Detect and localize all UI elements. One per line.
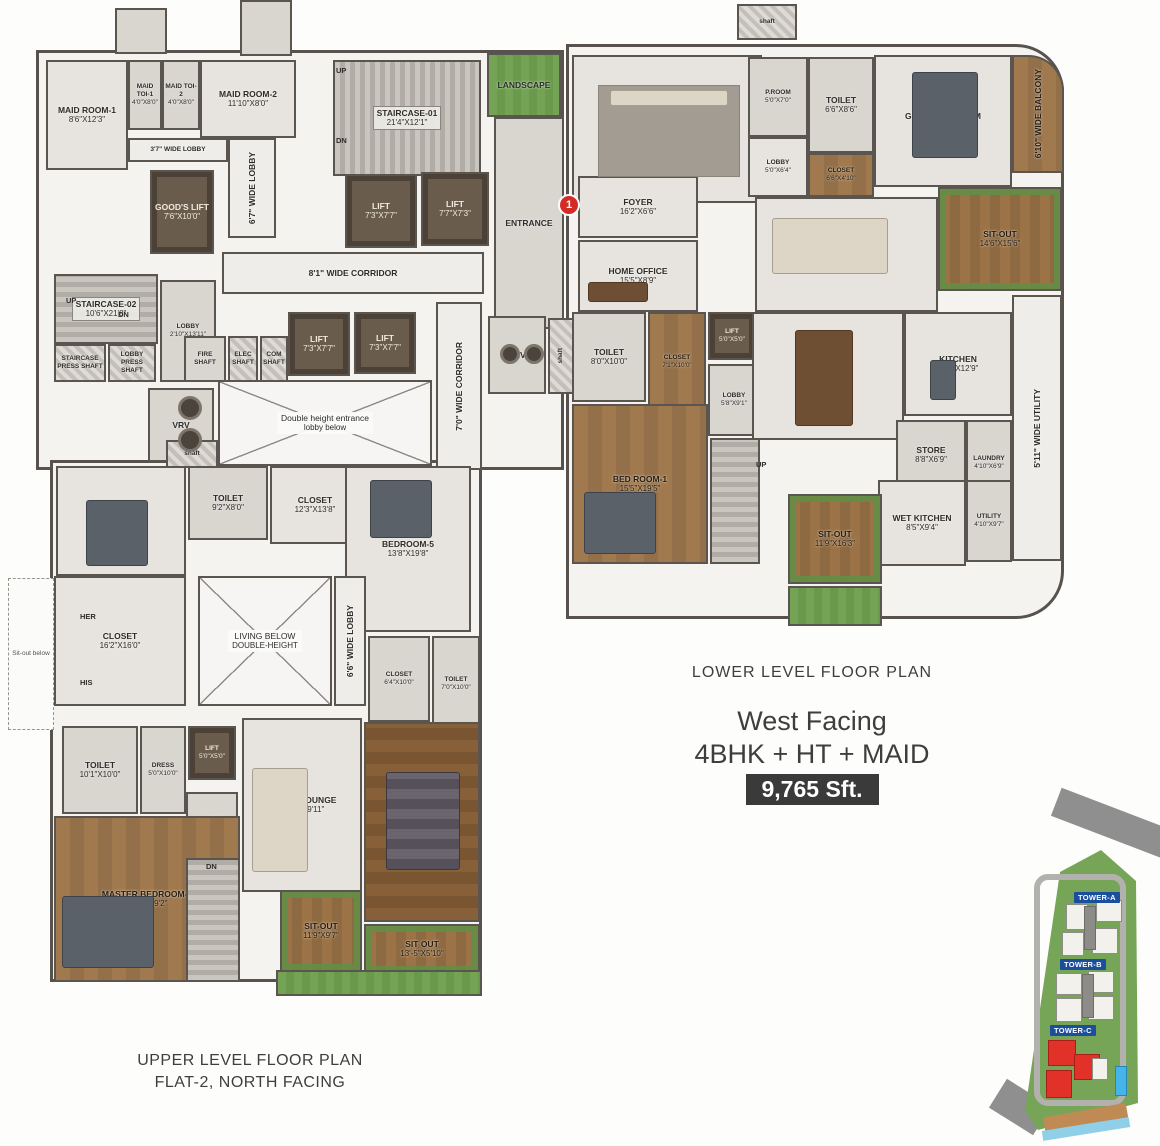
highlighted-building: [1048, 1040, 1076, 1066]
site-building: [1084, 906, 1096, 950]
upper-title-line2: FLAT-2, NORTH FACING: [60, 1072, 440, 1094]
room-lobby-press-shaft: LOBBY PRESS SHAFT: [108, 344, 156, 382]
room-5-11-wide-utility: 5'11" WIDE UTILITY: [1012, 295, 1062, 561]
furniture-item: [500, 344, 520, 364]
site-building: [1056, 973, 1082, 995]
room-dress: DRESS5'0"X10'0": [140, 726, 186, 814]
site-building: [1092, 1058, 1108, 1080]
room-area: [710, 438, 760, 564]
furniture-item: [524, 344, 544, 364]
furniture-item: [86, 500, 148, 566]
furniture-item: [610, 90, 728, 106]
unit-number-marker: 1: [560, 196, 578, 214]
unit-summary: West Facing 4BHK + HT + MAID 9,765 Sft.: [622, 706, 1002, 805]
furniture-item: [386, 772, 460, 870]
room-lift: LIFT7'3"X7'7": [354, 312, 416, 374]
room-sit-out: SIT-OUT11'9"X16'3": [788, 494, 882, 584]
site-key-map: TOWER-ATOWER-BTOWER-C: [1008, 818, 1160, 1146]
room-shaft: shaft: [548, 318, 574, 394]
furniture-item: [912, 72, 978, 158]
furniture-item: [370, 480, 432, 538]
furniture-item: [588, 282, 648, 302]
room-elec-shaft: ELEC SHAFT: [228, 336, 258, 382]
room-6-7-wide-lobby: 6'7" WIDE LOBBY: [228, 138, 276, 238]
room-maid-toi-1: MAID TOI-14'0"X8'0": [128, 60, 162, 130]
site-building: [1096, 900, 1122, 922]
room-landscape: LANDSCAPE: [487, 53, 561, 117]
site-building: [1056, 998, 1082, 1022]
site-building: [1082, 974, 1094, 1018]
room-sit-out: SIT OUT13'-5"X5'10": [364, 924, 480, 974]
room-maid-room-2: MAID ROOM-211'10"X8'0": [200, 60, 296, 138]
furniture-item: [178, 428, 202, 452]
room-8-1-wide-corridor: 8'1" WIDE CORRIDOR: [222, 252, 484, 294]
room-closet: CLOSET16'2"X16'0": [54, 576, 186, 706]
facing-text: West Facing: [622, 706, 1002, 737]
tower-label-tower-c: TOWER-C: [1050, 1025, 1096, 1036]
room-toilet: TOILET10'1"X10'0": [62, 726, 138, 814]
tower-label-tower-b: TOWER-B: [1060, 959, 1106, 970]
furniture-item: [795, 330, 853, 426]
room-sit-out-below: Sit-out below: [8, 578, 54, 730]
room-lift: LIFT5'0"X5'0": [708, 312, 756, 360]
room-6-10-wide-balcony: 6'10" WIDE BALCONY: [1012, 55, 1064, 173]
furniture-item: [584, 492, 656, 554]
room-utility: UTILITY4'10"X9'7": [966, 480, 1012, 562]
room-good-s-lift: GOOD'S LIFT7'6"X10'0": [150, 170, 214, 254]
room-lift: LIFT5'0"X5'0": [188, 726, 236, 780]
room-sit-out: SIT-OUT14'6"X15'6": [938, 187, 1062, 291]
tower-label-tower-a: TOWER-A: [1074, 892, 1120, 903]
room-maid-toi-2: MAID TOI-24'0"X8'0": [162, 60, 200, 130]
room-3-7-wide-lobby: 3'7" WIDE LOBBY: [128, 138, 228, 162]
furniture-item: [62, 896, 154, 968]
room-staircase-press-shaft: STAIRCASE PRESS SHAFT: [54, 344, 106, 382]
room-com-shaft: COM SHAFT: [260, 336, 288, 382]
room-wet-kitchen: WET KITCHEN8'5"X9'4": [878, 480, 966, 566]
room-closet: CLOSET6'6"X4'10": [808, 153, 874, 197]
room-toilet: TOILET6'6"X8'6": [808, 57, 874, 153]
floor-plan-canvas: MAID ROOM-18'6"X12'3"MAID TOI-14'0"X8'0"…: [0, 0, 1160, 1146]
room-lobby: LOBBY5'0"X6'4": [748, 137, 808, 197]
room-area: [115, 8, 167, 54]
furniture-item: [930, 360, 956, 400]
room-staircase-01: STAIRCASE-0121'4"X12'1": [333, 60, 481, 176]
room-sit-out: SIT-OUT11'9"X9'7": [280, 890, 362, 972]
highlighted-building: [1046, 1070, 1072, 1098]
room-shaft: shaft: [737, 4, 797, 40]
room-lift: LIFT7'3"X7'7": [288, 312, 350, 376]
area-badge: 9,765 Sft.: [746, 774, 879, 805]
room-fire-shaft: FIRE SHAFT: [184, 336, 226, 382]
room-foyer: FOYER16'2"X6'6": [578, 176, 698, 238]
room-area: [186, 858, 240, 982]
room-closet: CLOSET7'1"X10'0": [648, 312, 706, 412]
upper-title-line1: UPPER LEVEL FLOOR PLAN: [60, 1050, 440, 1072]
room-toilet: TOILET7'0"X10'0": [432, 636, 480, 732]
room-maid-room-1: MAID ROOM-18'6"X12'3": [46, 60, 128, 170]
room-toilet: TOILET9'2"X8'0": [188, 466, 268, 540]
site-building: [1062, 932, 1084, 956]
room-6-6-wide-lobby: 6'6" WIDE LOBBY: [334, 576, 366, 706]
room-7-0-wide-corridor: 7'0" WIDE CORRIDOR: [436, 302, 482, 470]
floor-plan-sheet: { "page": { "lower_plan_title": "LOWER L…: [0, 0, 1160, 1146]
room-living-below: LIVING BELOWDOUBLE-HEIGHT: [198, 576, 332, 706]
room-closet: CLOSET6'4"X10'0": [368, 636, 430, 722]
room-kitchen: KITCHEN14'4"X12'9": [904, 312, 1012, 416]
configuration-text: 4BHK + HT + MAID: [622, 739, 1002, 770]
room-area: [788, 586, 882, 626]
room-staircase-02: STAIRCASE-0210'6"X21'8": [54, 274, 158, 344]
upper-level-plan-title: UPPER LEVEL FLOOR PLAN FLAT-2, NORTH FAC…: [60, 1050, 440, 1093]
room-lift: LIFT7'7"X7'3": [421, 172, 489, 246]
pool: [1115, 1066, 1127, 1096]
room-p-room: P.ROOM5'0"X7'0": [748, 57, 808, 137]
lower-level-plan-title: LOWER LEVEL FLOOR PLAN: [622, 664, 1002, 682]
room-lift: LIFT7'3"X7'7": [345, 174, 417, 248]
room-double-height-entrance: Double height entrancelobby below: [218, 380, 432, 466]
furniture-item: [178, 396, 202, 420]
room-entrance: ENTRANCE: [494, 117, 564, 329]
furniture-item: [772, 218, 888, 274]
room-area: [240, 0, 292, 56]
room-toilet: TOILET8'0"X10'0": [572, 312, 646, 402]
room-area: [276, 970, 482, 996]
furniture-item: [252, 768, 308, 872]
